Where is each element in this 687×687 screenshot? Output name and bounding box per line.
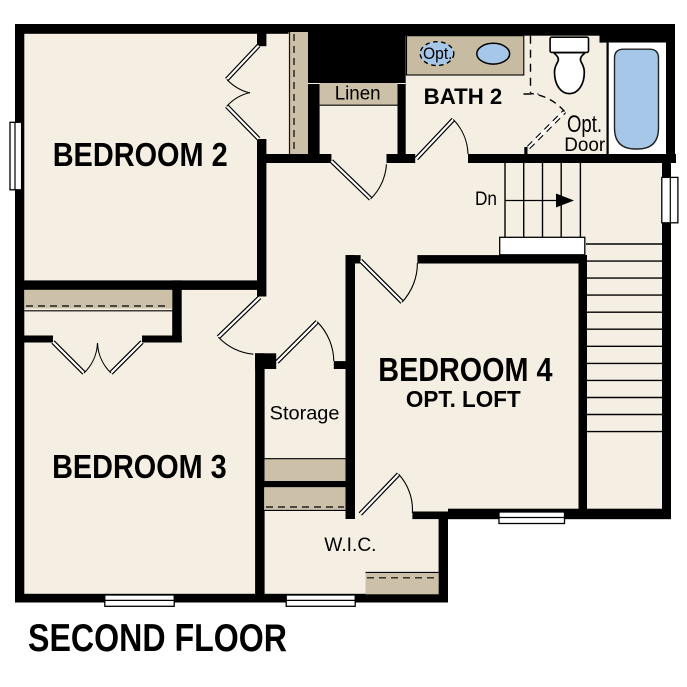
svg-text:Linen: Linen	[335, 83, 381, 105]
svg-text:W.I.C.: W.I.C.	[324, 535, 376, 556]
svg-text:BEDROOM 4: BEDROOM 4	[378, 352, 553, 389]
svg-text:Dn: Dn	[475, 189, 497, 210]
svg-text:BATH 2: BATH 2	[424, 84, 503, 109]
svg-text:BEDROOM 2: BEDROOM 2	[53, 137, 228, 174]
svg-text:Opt.: Opt.	[423, 45, 453, 63]
svg-text:SECOND FLOOR: SECOND FLOOR	[28, 617, 287, 660]
svg-text:BEDROOM 3: BEDROOM 3	[52, 449, 227, 486]
svg-text:OPT. LOFT: OPT. LOFT	[406, 386, 521, 412]
svg-text:Door: Door	[564, 134, 605, 156]
svg-text:Storage: Storage	[270, 403, 340, 425]
